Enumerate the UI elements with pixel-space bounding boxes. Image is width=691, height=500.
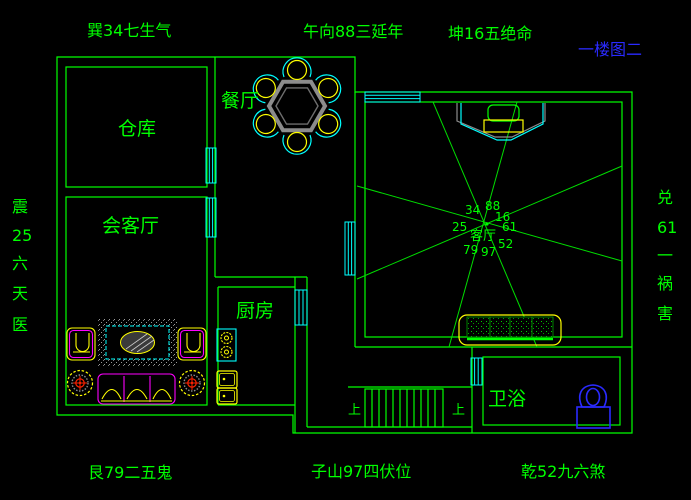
sink [217,371,237,404]
room-label-weiyu: 卫浴 [488,388,526,410]
cad-floorplan-view: 巽34七生气 午向88三延年 坤16五绝命 一楼图二 艮79二五鬼 子山97四伏… [0,0,691,500]
svg-text:一: 一 [657,246,673,265]
label-xun: 巽34七生气 [87,21,171,40]
plant-table-right [180,371,205,396]
reception-sofa [98,374,175,404]
rug [98,318,177,367]
svg-text:61: 61 [502,220,517,234]
room-label-cangku: 仓库 [118,118,156,140]
keting-sofa [459,315,561,345]
svg-text:医: 医 [12,315,28,334]
door-bathroom [471,358,482,385]
svg-text:34: 34 [465,203,480,217]
label-gen: 艮79二五鬼 [88,463,172,482]
armchair-left [67,328,95,360]
svg-text:25: 25 [452,220,467,234]
compass-labels-bottom: 艮79二五鬼 子山97四伏位 乾52九六煞 [88,462,605,482]
room-label-chufang: 厨房 [236,300,274,322]
label-zishan: 子山97四伏位 [311,462,411,481]
window-keting-top [365,92,420,102]
label-qian: 乾52九六煞 [521,462,605,481]
window-kitchen [295,290,307,325]
radiating-lines [357,102,622,347]
toilet [577,385,610,428]
drawing-title: 一楼图二 [578,40,642,59]
svg-text:兑: 兑 [657,188,673,207]
floorplan-drawing: 巽34七生气 午向88三延年 坤16五绝命 一楼图二 艮79二五鬼 子山97四伏… [0,0,691,500]
svg-text:52: 52 [498,237,513,251]
dining-chairs [248,58,345,154]
windows [206,92,482,385]
room-label-keting: 客厅 [470,228,496,244]
stove [217,329,236,361]
room-label-canting: 餐厅 [221,90,259,112]
compass-labels-right: 兑 61 一 祸 害 [657,188,677,323]
svg-text:震: 震 [12,197,28,216]
center-point [485,222,488,225]
svg-text:天: 天 [12,284,28,303]
tv-unit [457,103,545,140]
armchair-right [178,328,206,360]
plant-table-left [68,371,93,396]
svg-text:79: 79 [463,243,478,257]
stairs-up-left: 上 [348,403,361,418]
window-keting-left [345,222,355,275]
room-keting-walls [365,102,622,337]
interior-walls [66,57,632,433]
dining-table [248,58,345,154]
compass-labels-top: 巽34七生气 午向88三延年 坤16五绝命 [87,21,532,43]
stairs-up-right: 上 [452,403,465,418]
svg-text:97: 97 [481,245,496,259]
svg-text:害: 害 [657,304,673,323]
svg-text:祸: 祸 [657,274,673,293]
svg-text:六: 六 [12,254,28,273]
label-kun: 坤16五绝命 [448,24,532,43]
label-wuxiang: 午向88三延年 [303,22,403,41]
room-label-huiketing: 会客厅 [102,215,159,237]
svg-text:25: 25 [12,226,32,245]
stairs [307,387,472,427]
compass-labels-left: 震 25 六 天 医 [12,197,32,334]
svg-text:61: 61 [657,218,677,237]
